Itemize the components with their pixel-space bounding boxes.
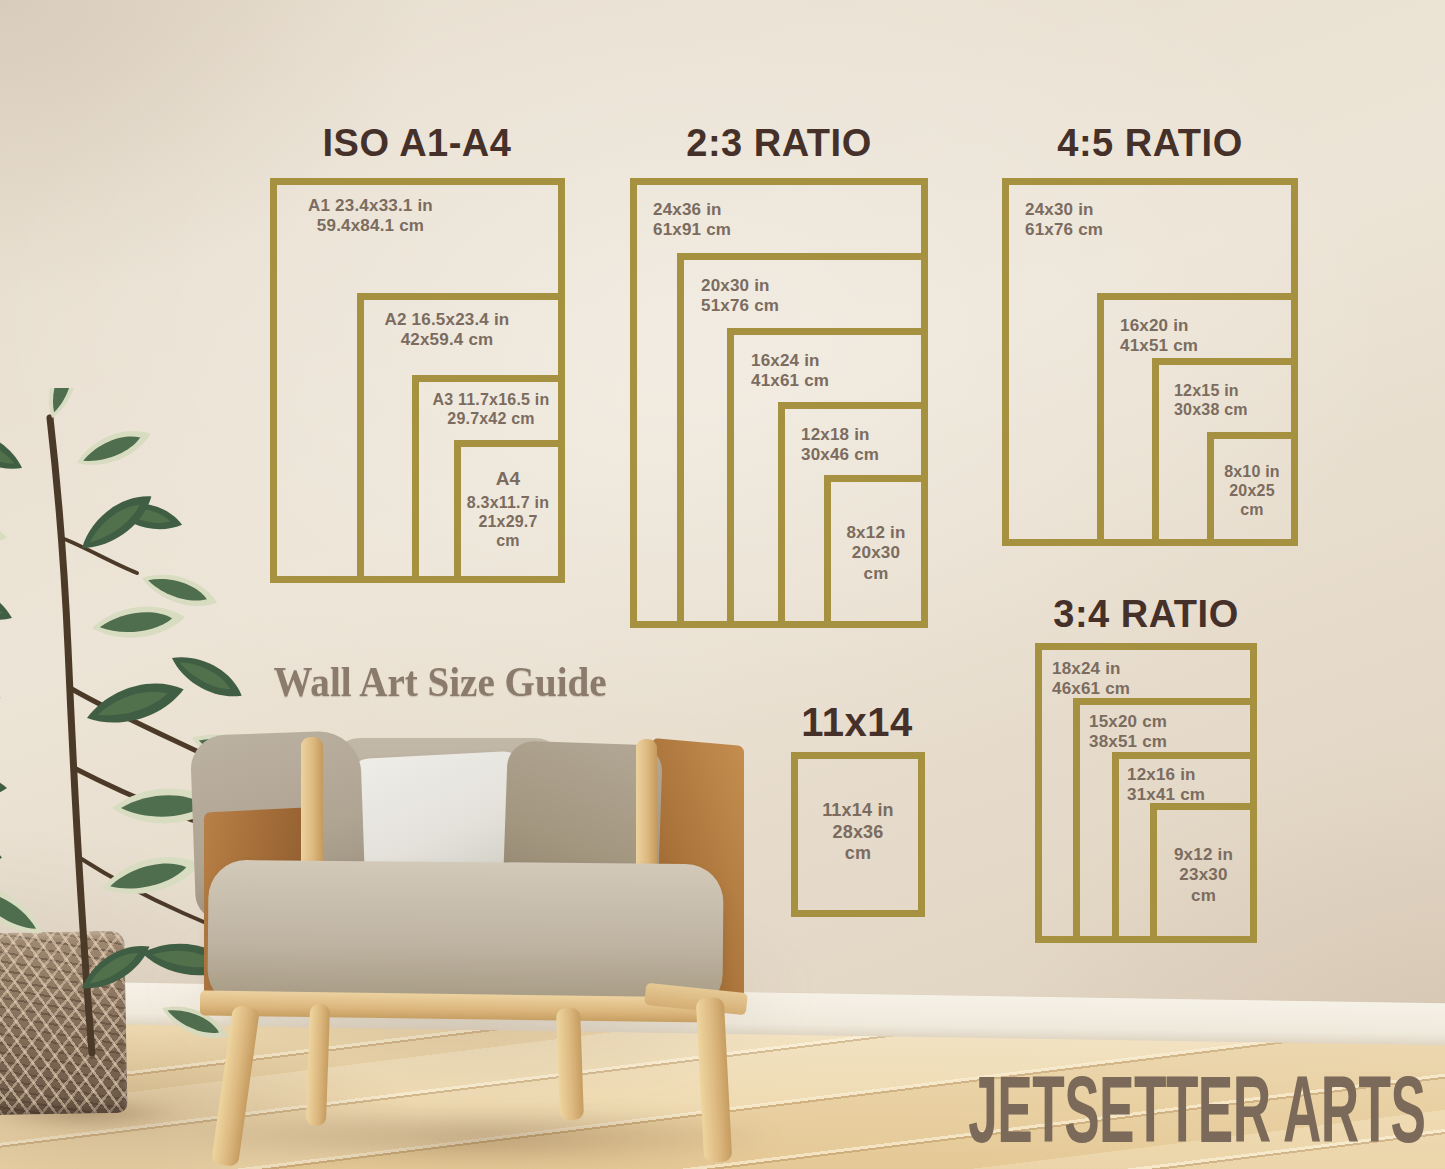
section-title-3-4: 3:4 RATIO: [996, 595, 1296, 635]
size-label-line: A2 16.5x23.4 in: [362, 310, 532, 330]
size-label-11x14: 11x14 in 28x36 cm: [798, 800, 918, 865]
size-label-line: 12x18 in: [801, 425, 879, 445]
size-label-20x30: 20x30 in 51x76 cm: [701, 276, 779, 317]
size-label-line: 20x25: [1212, 481, 1292, 500]
size-label-a1: A1 23.4x33.1 in 59.4x84.1 cm: [283, 196, 458, 237]
size-label-line: 15x20 cm: [1089, 712, 1167, 732]
size-label-name: A4: [458, 468, 558, 491]
section-title-2-3: 2:3 RATIO: [629, 124, 929, 164]
size-label-16x24: 16x24 in 41x61 cm: [751, 351, 829, 392]
size-label-24x36: 24x36 in 61x91 cm: [653, 200, 731, 241]
size-label-line: 61x76 cm: [1025, 220, 1103, 240]
size-label-line: 28x36: [798, 822, 918, 844]
section-title-iso: ISO A1-A4: [267, 124, 567, 164]
size-label-a3: A3 11.7x16.5 in 29.7x42 cm: [420, 390, 562, 428]
size-label-line: 23x30: [1157, 865, 1250, 885]
size-label-line: 41x61 cm: [751, 371, 829, 391]
chair-leg-rear-middle: [556, 1008, 584, 1121]
size-label-line: 12x15 in: [1174, 381, 1248, 400]
size-label-line: 20x30 in: [701, 276, 779, 296]
size-label-16x20: 16x20 in 41x51 cm: [1120, 316, 1198, 357]
size-label-line: cm: [798, 843, 918, 865]
size-label-12x18: 12x18 in 30x46 cm: [801, 425, 879, 466]
size-label-line: 29.7x42 cm: [420, 409, 562, 428]
size-label-line: 30x38 cm: [1174, 400, 1248, 419]
size-label-line: 8x12 in: [831, 523, 921, 543]
section-title-11x14: 11x14: [757, 701, 957, 743]
size-label-line: cm: [831, 564, 921, 584]
size-label-line: 42x59.4 cm: [362, 330, 532, 350]
size-label-line: 38x51 cm: [1089, 732, 1167, 752]
size-label-18x24: 18x24 in 46x61 cm: [1052, 659, 1130, 700]
size-label-line: cm: [1212, 500, 1292, 519]
size-label-8x10: 8x10 in 20x25 cm: [1212, 462, 1292, 520]
size-label-line: 24x30 in: [1025, 200, 1103, 220]
size-label-8x12: 8x12 in 20x30 cm: [831, 523, 921, 584]
size-label-a4: A4 8.3x11.7 in 21x29.7 cm: [458, 468, 558, 550]
chair-leg-rear-left: [306, 1004, 330, 1127]
size-label-line: 8.3x11.7 in: [458, 493, 558, 512]
size-label-line: 21x29.7: [458, 512, 558, 531]
size-label-15x20: 15x20 cm 38x51 cm: [1089, 712, 1167, 753]
size-label-line: cm: [458, 531, 558, 550]
size-label-line: 31x41 cm: [1127, 785, 1205, 805]
size-label-line: 20x30: [831, 543, 921, 563]
size-label-line: 11x14 in: [798, 800, 918, 822]
section-title-4-5: 4:5 RATIO: [1000, 124, 1300, 164]
chair-floor-shadow: [185, 1106, 785, 1168]
size-label-line: A1 23.4x33.1 in: [283, 196, 458, 216]
size-label-24x30: 24x30 in 61x76 cm: [1025, 200, 1103, 241]
size-label-line: 41x51 cm: [1120, 336, 1198, 356]
size-label-a2: A2 16.5x23.4 in 42x59.4 cm: [362, 310, 532, 351]
brand-watermark: JETSETTER ARTS: [968, 1062, 1425, 1157]
size-label-9x12: 9x12 in 23x30 cm: [1157, 845, 1250, 906]
size-label-line: 8x10 in: [1212, 462, 1292, 481]
size-label-line: 30x46 cm: [801, 445, 879, 465]
size-label-line: 59.4x84.1 cm: [283, 216, 458, 236]
size-label-line: 24x36 in: [653, 200, 731, 220]
size-label-line: 16x24 in: [751, 351, 829, 371]
size-label-line: 9x12 in: [1157, 845, 1250, 865]
size-label-line: 46x61 cm: [1052, 679, 1130, 699]
size-label-12x15: 12x15 in 30x38 cm: [1174, 381, 1248, 419]
size-label-line: 16x20 in: [1120, 316, 1198, 336]
size-label-line: 18x24 in: [1052, 659, 1130, 679]
size-label-line: cm: [1157, 886, 1250, 906]
size-label-line: 51x76 cm: [701, 296, 779, 316]
size-label-12x16: 12x16 in 31x41 cm: [1127, 765, 1205, 806]
size-label-line: A3 11.7x16.5 in: [420, 390, 562, 409]
size-label-line: 12x16 in: [1127, 765, 1205, 785]
size-label-line: 61x91 cm: [653, 220, 731, 240]
